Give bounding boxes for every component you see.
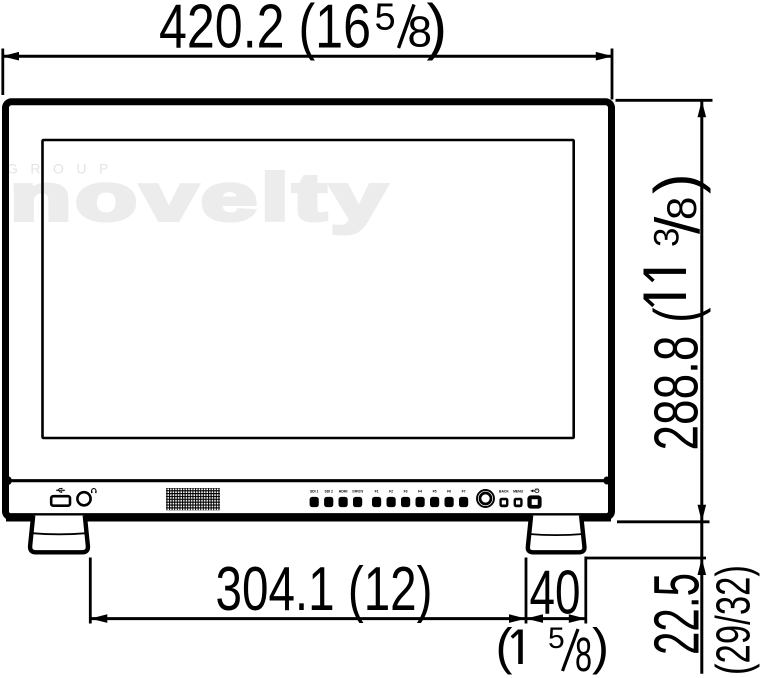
svg-text:F7: F7: [462, 490, 466, 494]
svg-text:F5: F5: [433, 490, 437, 494]
svg-text:F6: F6: [447, 490, 451, 494]
svg-text:MENU: MENU: [513, 490, 524, 494]
svg-text:8: 8: [658, 197, 705, 220]
svg-text:5: 5: [548, 622, 565, 655]
svg-text:22.5: 22.5: [641, 573, 713, 655]
svg-text:SDI 1: SDI 1: [310, 490, 319, 494]
svg-text:F1: F1: [375, 490, 379, 494]
svg-text:5: 5: [375, 0, 396, 39]
svg-text:F2: F2: [389, 490, 393, 494]
svg-text:420.2 (16: 420.2 (16: [159, 0, 371, 62]
svg-text:BACK: BACK: [499, 490, 509, 494]
svg-text:COMPOSITE: COMPOSITE: [352, 490, 363, 494]
svg-text:(29/32): (29/32): [708, 565, 761, 675]
svg-text:): ): [592, 618, 609, 675]
svg-text:8: 8: [575, 629, 592, 678]
svg-text:F3: F3: [404, 490, 408, 494]
svg-text:SDI 2: SDI 2: [324, 490, 333, 494]
svg-text:40: 40: [530, 559, 581, 628]
svg-text:304.1 (12): 304.1 (12): [216, 555, 433, 624]
svg-text:novelty: novelty: [10, 161, 390, 235]
svg-text:(: (: [496, 618, 513, 675]
svg-text:F4: F4: [418, 490, 422, 494]
svg-text:HDMI: HDMI: [339, 490, 348, 494]
svg-text:288.8 (: 288.8 (: [643, 307, 712, 450]
svg-text:): ): [427, 0, 448, 62]
svg-text:): ): [643, 173, 712, 194]
